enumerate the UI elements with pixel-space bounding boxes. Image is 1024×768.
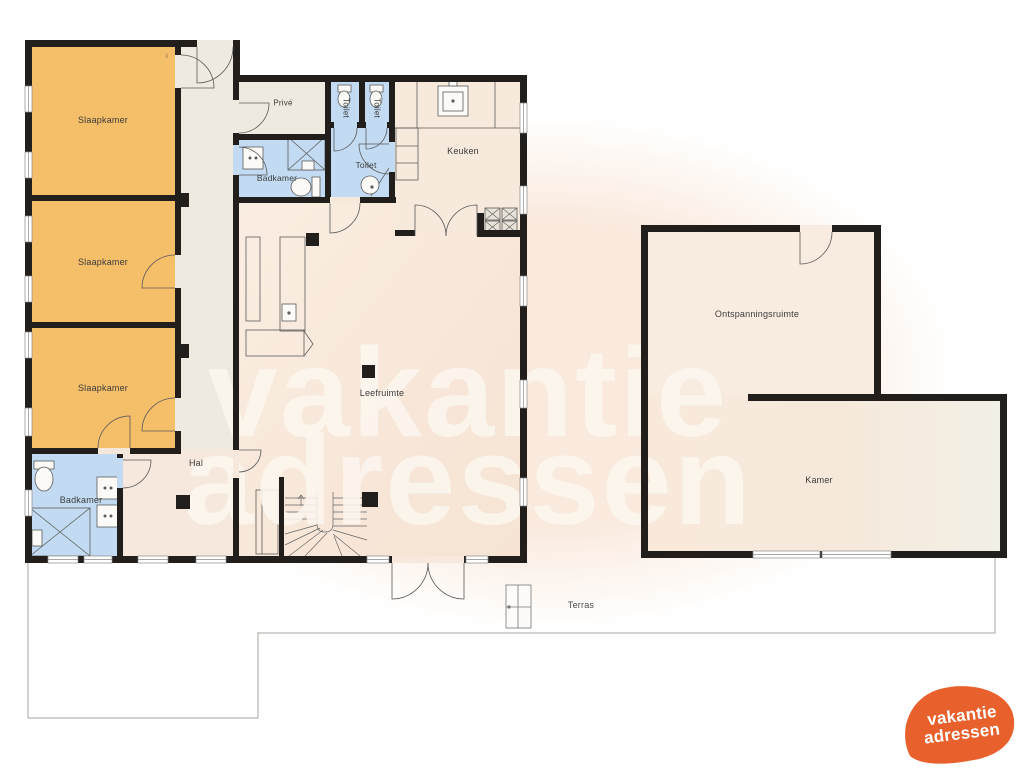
pillar (306, 233, 319, 246)
walls (25, 40, 1007, 563)
pillar (362, 492, 378, 507)
pillar (175, 193, 189, 207)
annotation-mark: i (166, 54, 168, 60)
floorplan-canvas: vakantie adressen (0, 0, 1024, 768)
room-label-leefruimte: Leefruimte (360, 388, 405, 398)
pillar (362, 365, 375, 378)
room-label-slaapkamer-1: Slaapkamer (78, 115, 128, 125)
room-label-keuken: Keuken (447, 146, 479, 156)
room-label-ontspanningsruimte: Ontspanningsruimte (715, 309, 799, 319)
door-gaps (98, 40, 832, 563)
room-label-badkamer-top: Badkamer (257, 173, 297, 183)
vakantieadressen-logo: vakantie adressen (900, 682, 1018, 766)
pillar (175, 344, 189, 358)
room-label-kamer: Kamer (805, 475, 833, 485)
room-label-hal: Hal (189, 458, 203, 468)
structure-layer (0, 0, 1024, 768)
door-swings (98, 47, 832, 599)
room-label-terras: Terras (568, 600, 594, 610)
room-label-prive: Privé (273, 99, 292, 108)
room-label-toilet-room: Toilet (355, 160, 376, 170)
room-label-slaapkamer-3: Slaapkamer (78, 383, 128, 393)
room-label-toilet-2: Toilet (373, 98, 382, 118)
room-label-slaapkamer-2: Slaapkamer (78, 257, 128, 267)
room-label-badkamer-bottom: Badkamer (60, 495, 103, 505)
room-label-toilet-1: Toilet (342, 98, 351, 118)
pillar (176, 495, 190, 509)
